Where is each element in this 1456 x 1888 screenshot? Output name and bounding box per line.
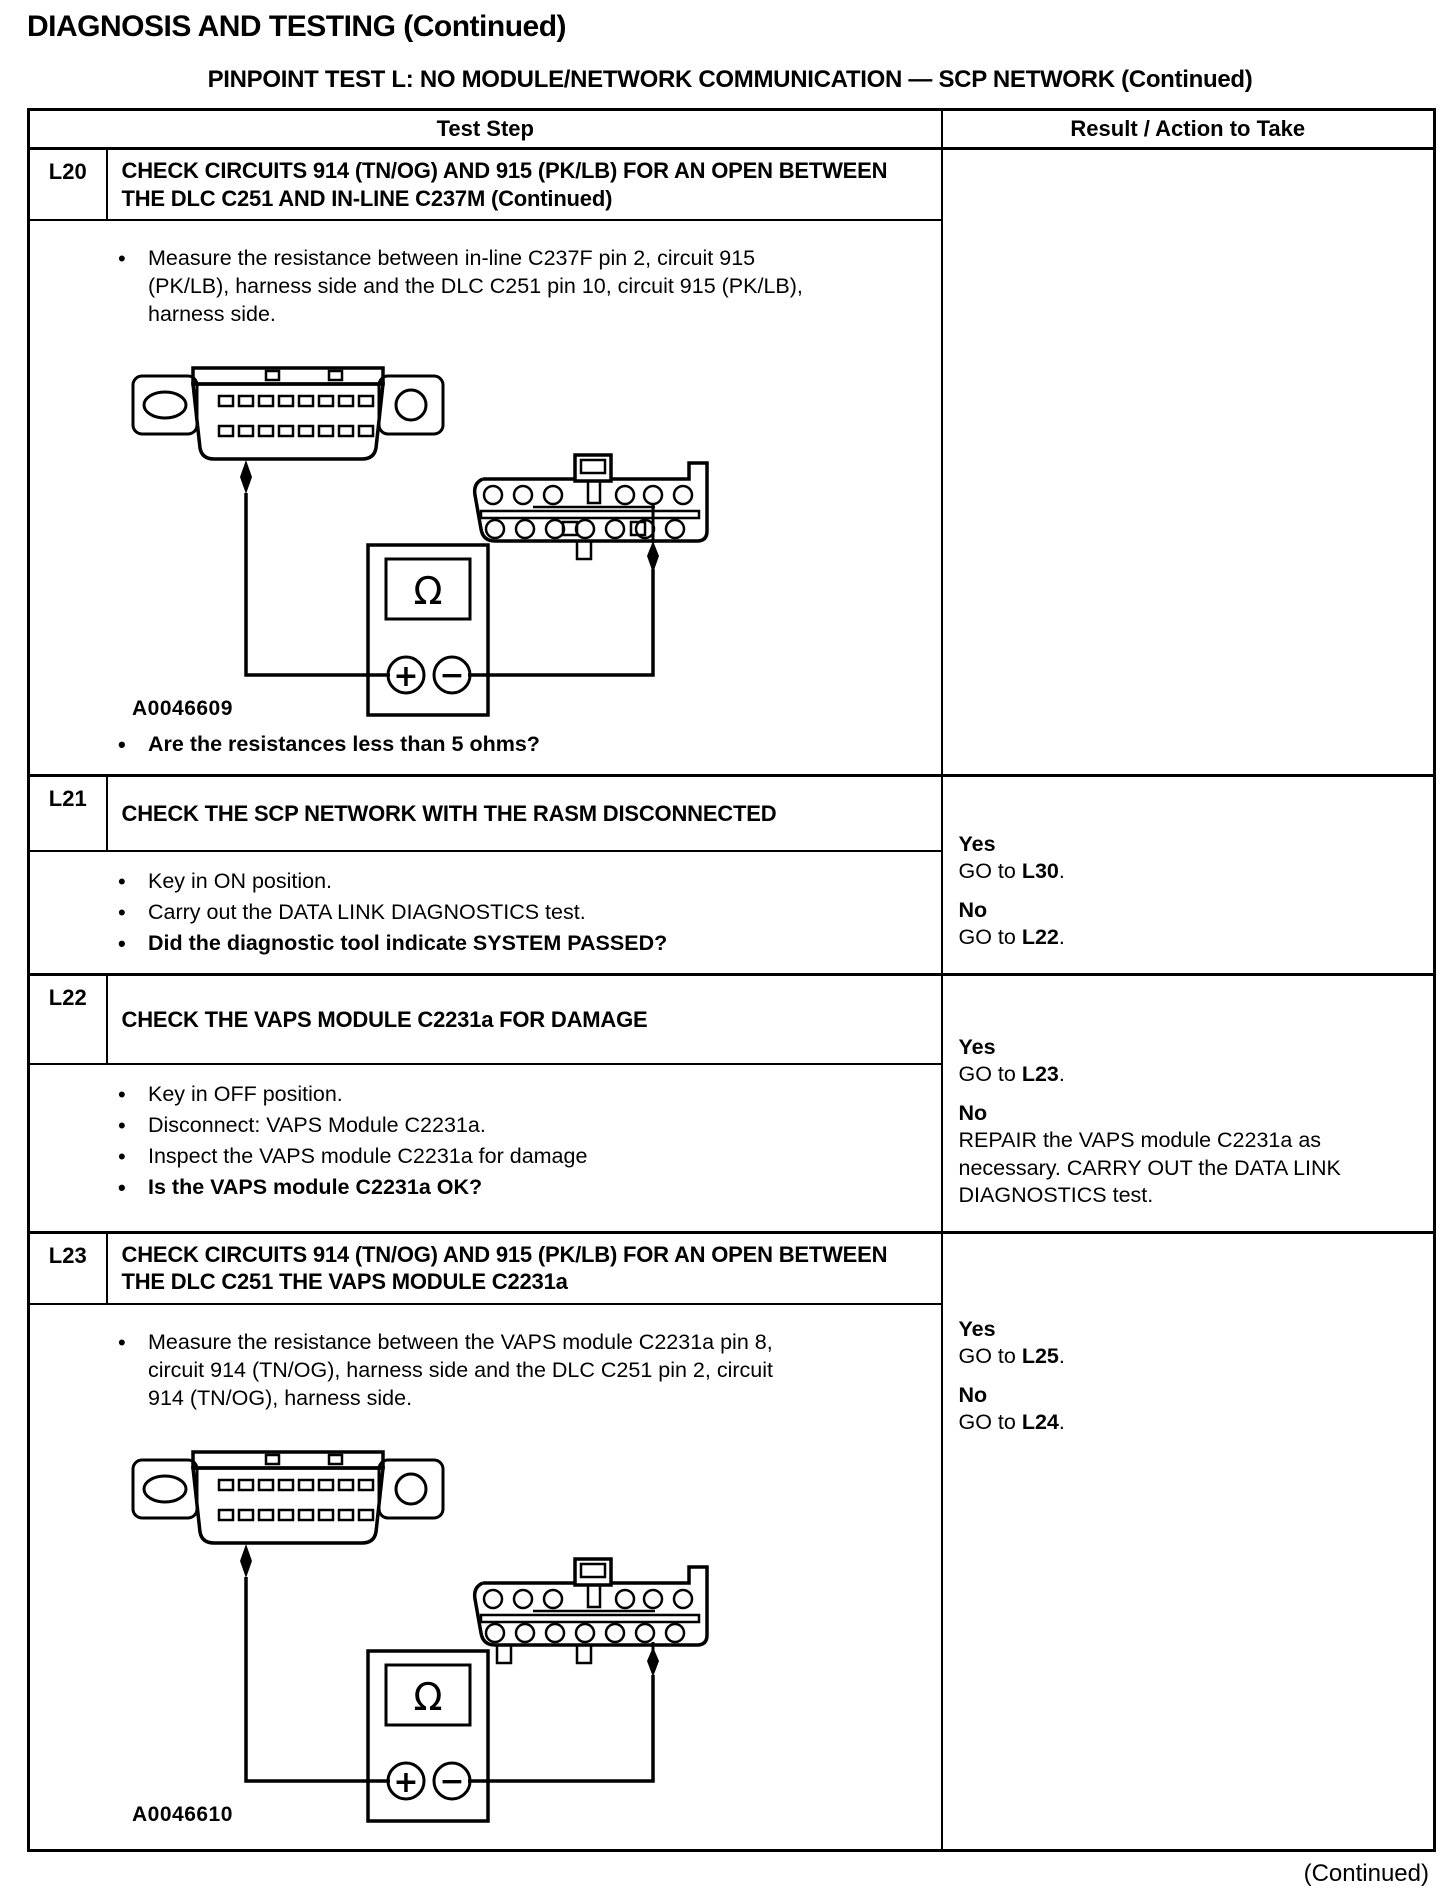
page-title: DIAGNOSIS AND TESTING (Continued) [27,10,1433,44]
bullet-item: Measure the resistance between the VAPS … [92,1329,812,1413]
bullet-item: Measure the resistance between in-line C… [92,245,812,329]
row-l21-title: L21 CHECK THE SCP NETWORK WITH THE RASM … [29,775,1435,851]
mounting-hole-right [396,390,426,420]
column-header-test-step: Test Step [29,110,942,149]
probe-tip-left [240,460,252,494]
mounting-hole-left [144,392,186,418]
probe-tip-right [647,1647,659,1677]
table-header-row: Test Step Result / Action to Take [29,110,1435,149]
dlc-pins-bottom-row [219,1510,373,1520]
mounting-hole-left [144,1476,186,1502]
row-l22-title: L22 CHECK THE VAPS MODULE C2231a FOR DAM… [29,974,1435,1064]
bullet-item: Disconnect: VAPS Module C2231a. [92,1112,812,1140]
ohm-symbol: Ω [413,569,442,613]
pinpoint-test-table: Test Step Result / Action to Take L20 CH… [27,108,1436,1852]
result-cell-l23: Yes GO to L25. No GO to L24. [942,1232,1435,1850]
result-yes: Yes GO to L25. [959,1316,1424,1371]
dlc-pins-bottom-row [219,426,373,436]
step-title-l20: CHECK CIRCUITS 914 (TN/OG) AND 915 (PK/L… [107,149,942,221]
result-cell-l21: Yes GO to L30. No GO to L22. [942,775,1435,974]
ohmmeter: Ω + − [368,545,488,715]
result-cell-l20-empty [942,149,1435,776]
bullet-item: Key in ON position. [92,868,812,896]
vaps-module-connector [475,1559,707,1663]
step-number-l23: L23 [29,1232,107,1304]
vaps-pins-bottom-row [486,1624,684,1642]
step-content-l21: Key in ON position. Carry out the DATA L… [29,851,942,974]
inline-connector [475,455,707,559]
figure-id-label: A0046609 [132,697,233,721]
row-l23-title: L23 CHECK CIRCUITS 914 (TN/OG) AND 915 (… [29,1232,1435,1304]
row-l20-title: L20 CHECK CIRCUITS 914 (TN/OG) AND 915 (… [29,149,1435,221]
ohmmeter-test-diagram: Ω + − [118,1439,818,1829]
step-content-l20: Measure the resistance between in-line C… [29,220,942,775]
figure-a0046610: Ω + − A0046610 [118,1439,818,1829]
dlc-pins-top-row [219,1480,373,1490]
step-content-l22: Key in OFF position. Disconnect: VAPS Mo… [29,1064,942,1232]
figure-a0046609: Ω + − A0046609 [118,355,818,723]
result-no: No GO to L22. [959,897,1424,952]
step-number-l20: L20 [29,149,107,221]
step-content-l23: Measure the resistance between the VAPS … [29,1304,942,1850]
ohmmeter: Ω + − [368,1651,488,1821]
dlc-connector [133,368,443,494]
probe-tip-right [647,541,659,573]
question-list-l20: Are the resistances less than 5 ohms? [92,731,931,759]
step-title-l23: CHECK CIRCUITS 914 (TN/OG) AND 915 (PK/L… [107,1232,942,1304]
step-title-l21: CHECK THE SCP NETWORK WITH THE RASM DISC… [107,775,942,851]
result-yes: Yes GO to L30. [959,831,1424,886]
question-bullet: Are the resistances less than 5 ohms? [92,731,812,759]
column-header-result: Result / Action to Take [942,110,1435,149]
step-title-l22: CHECK THE VAPS MODULE C2231a FOR DAMAGE [107,974,942,1064]
pinpoint-test-title: PINPOINT TEST L: NO MODULE/NETWORK COMMU… [27,66,1433,94]
question-bullet: Did the diagnostic tool indicate SYSTEM … [92,930,812,958]
result-cell-l22: Yes GO to L23. No REPAIR the VAPS module… [942,974,1435,1232]
bullet-list-l23: Measure the resistance between the VAPS … [92,1329,931,1413]
test-lead-wire-right [468,569,653,675]
ohmmeter-test-diagram: Ω + − [118,355,818,723]
svg-text:+: + [393,1765,418,1800]
bullet-list-l22: Key in OFF position. Disconnect: VAPS Mo… [92,1081,931,1202]
step-number-l22: L22 [29,974,107,1064]
bullet-list-l21: Key in ON position. Carry out the DATA L… [92,868,931,958]
question-bullet: Is the VAPS module C2231a OK? [92,1174,812,1202]
bullet-list-l20: Measure the resistance between in-line C… [92,245,931,329]
manual-page: DIAGNOSIS AND TESTING (Continued) PINPOI… [0,0,1456,1888]
step-number-l21: L21 [29,775,107,851]
bullet-item: Key in OFF position. [92,1081,812,1109]
ohm-symbol: Ω [413,1675,442,1719]
figure-id-label: A0046610 [132,1803,233,1827]
svg-text:−: − [439,1764,464,1799]
continued-footer: (Continued) [27,1860,1433,1888]
dlc-pins-top-row [219,396,373,406]
svg-text:−: − [439,658,464,693]
bullet-item: Inspect the VAPS module C2231a for damag… [92,1143,812,1171]
result-no: No REPAIR the VAPS module C2231a as nece… [959,1100,1424,1210]
bullet-item: Carry out the DATA LINK DIAGNOSTICS test… [92,899,812,927]
test-lead-wire-right [468,1675,653,1781]
dlc-connector [133,1452,443,1578]
result-yes: Yes GO to L23. [959,1034,1424,1089]
svg-text:+: + [393,659,418,694]
mounting-hole-right [396,1474,426,1504]
result-no: No GO to L24. [959,1382,1424,1437]
probe-tip-left [240,1544,252,1578]
